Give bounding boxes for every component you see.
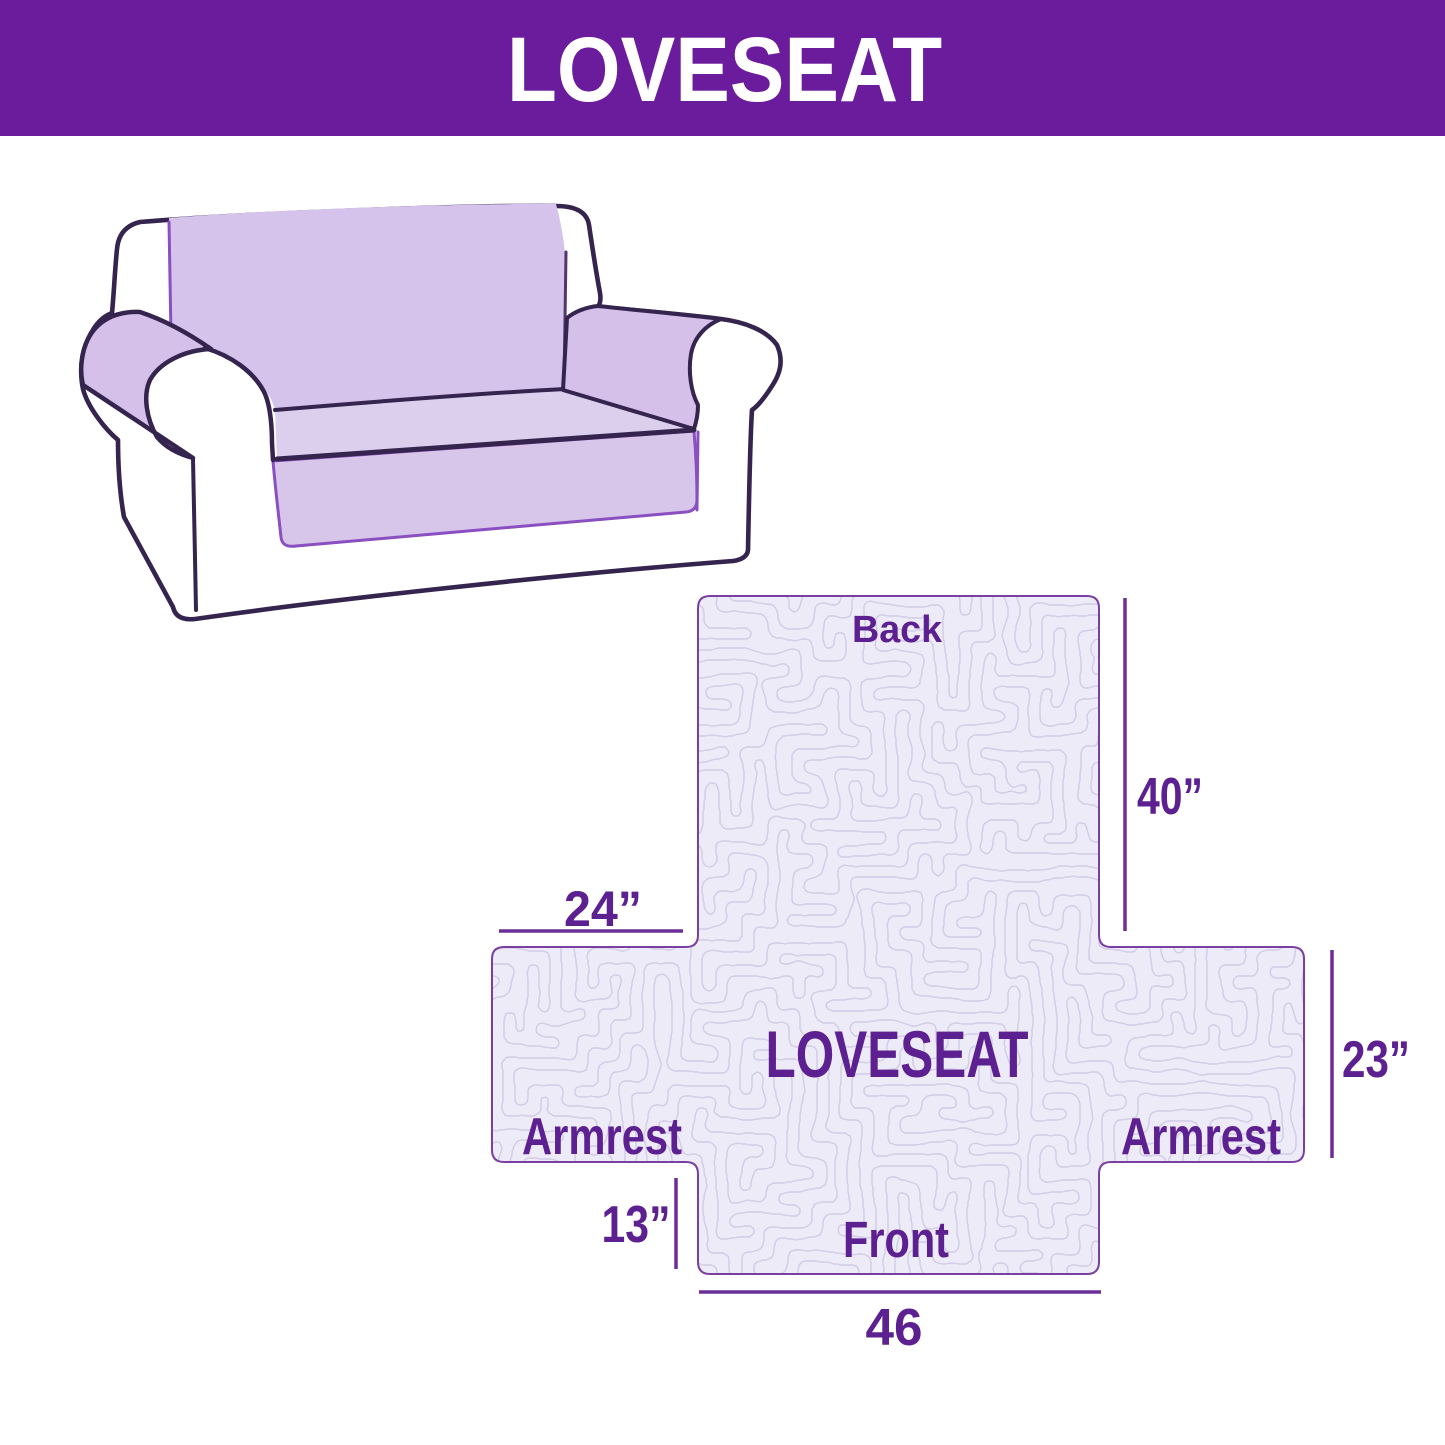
svg-text:Armrest: Armrest	[522, 1108, 682, 1166]
svg-text:40”: 40”	[1137, 768, 1203, 826]
svg-text:Armrest: Armrest	[1121, 1108, 1281, 1166]
svg-text:46: 46	[866, 1299, 923, 1357]
svg-text:Back: Back	[852, 609, 943, 651]
svg-text:23”: 23”	[1342, 1031, 1410, 1089]
svg-text:24”: 24”	[564, 881, 642, 937]
svg-text:13”: 13”	[602, 1196, 671, 1254]
svg-text:LOVESEAT: LOVESEAT	[766, 1017, 1029, 1091]
svg-text:Front: Front	[843, 1211, 949, 1268]
